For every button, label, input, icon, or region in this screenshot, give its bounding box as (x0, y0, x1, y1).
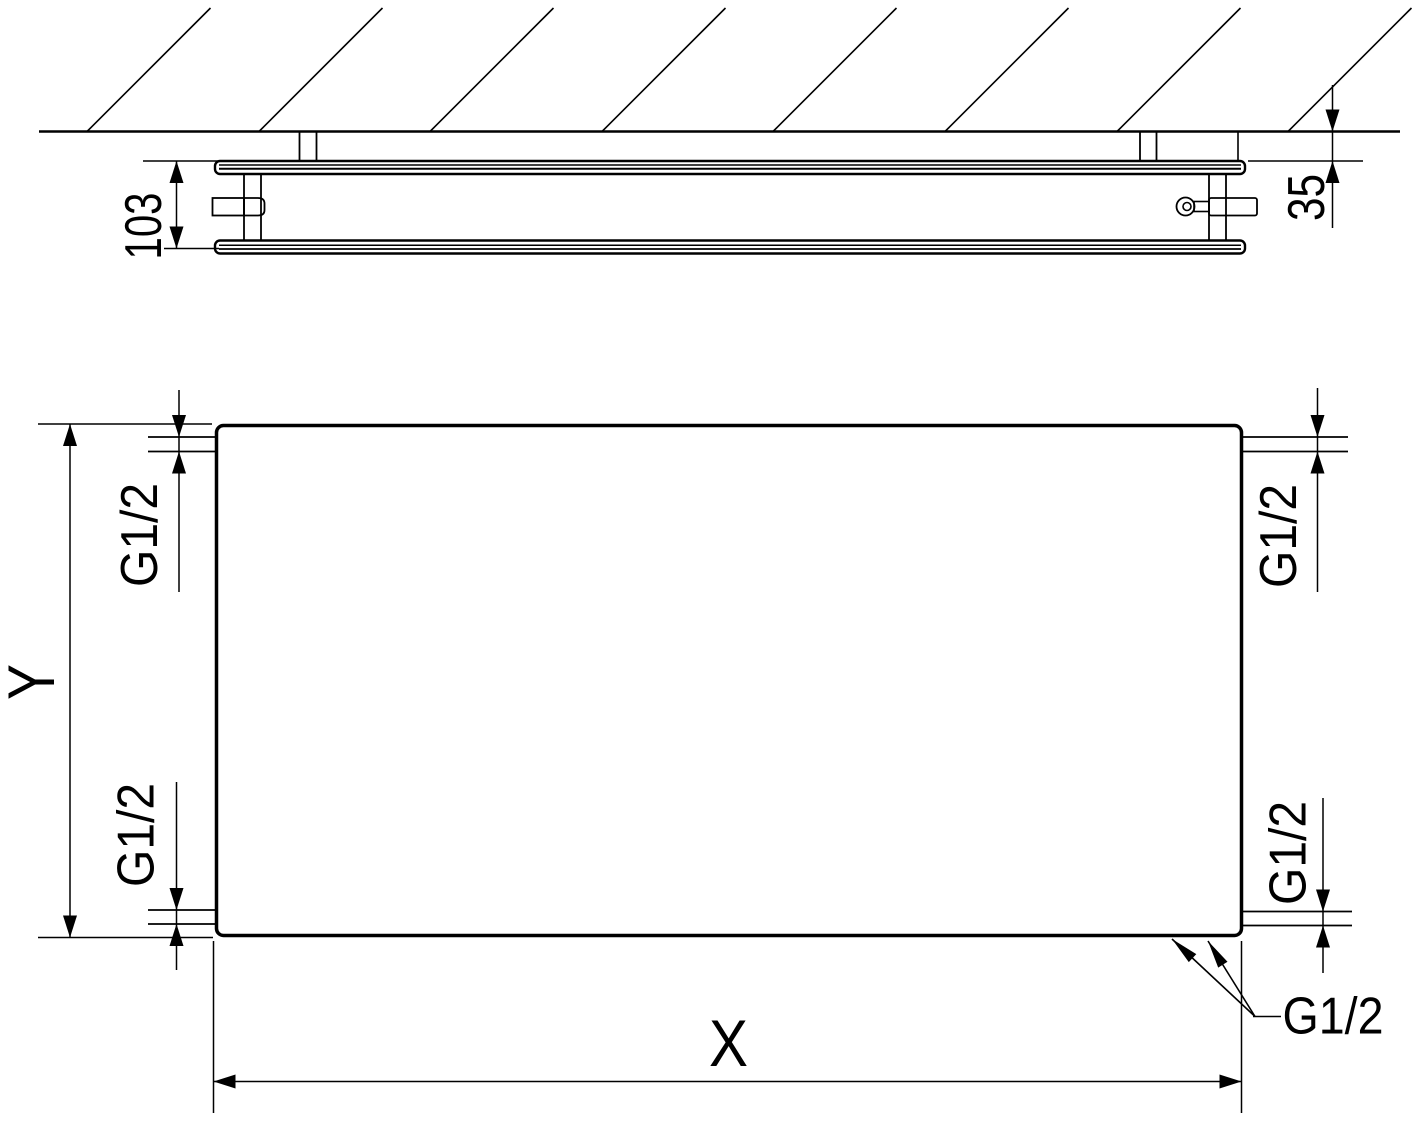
arrow-left-icon (214, 1075, 236, 1089)
radiator-back-panel (215, 161, 1245, 174)
arrow-down-icon (172, 415, 186, 437)
wall-distance-dimension-label: 35 (1278, 174, 1336, 221)
width-dimension-label: X (709, 1006, 748, 1080)
radiator-cross-section (213, 132, 1258, 254)
arrow-up-icon (1316, 926, 1330, 948)
wall-bracket-right (1140, 132, 1157, 162)
height-dimension: Y (0, 424, 213, 938)
panel-connector-left (213, 174, 265, 241)
bottom-connection-callout-label: G1/2 (1283, 988, 1384, 1046)
section-view: 103 35 (39, 8, 1412, 260)
depth-dimension-label: 103 (115, 193, 173, 260)
width-dimension: X (214, 941, 1242, 1113)
front-view: Y X G1/2 G1/2 (0, 388, 1384, 1113)
radiator-technical-drawing: 103 35 Y X (0, 0, 1419, 1123)
port-bottom-right: G1/2 (1242, 798, 1352, 973)
arrow-up-icon (172, 452, 186, 474)
bottom-connection-callout: G1/2 (1172, 939, 1384, 1046)
port-bottom-left-label: G1/2 (108, 783, 166, 887)
arrow-down-icon (1311, 415, 1325, 437)
arrow-up-icon (1311, 452, 1325, 474)
port-bottom-right-label: G1/2 (1260, 801, 1318, 905)
height-dimension-label: Y (0, 664, 68, 700)
arrow-up-icon (170, 924, 184, 946)
arrow-up-icon (63, 424, 77, 446)
depth-dimension: 103 (115, 161, 219, 260)
panel-connector-right (1209, 174, 1226, 241)
port-top-right-label: G1/2 (1250, 484, 1308, 588)
arrow-right-icon (1220, 1075, 1242, 1089)
arrow-down-icon (170, 888, 184, 910)
port-bottom-left: G1/2 (108, 782, 217, 970)
arrow-down-icon (1316, 890, 1330, 912)
port-top-left-label: G1/2 (111, 483, 169, 587)
wall-bracket-left (300, 132, 317, 162)
arrow-down-icon (1326, 110, 1340, 132)
arrow-up-icon (170, 161, 184, 183)
leader-arrow-icon (1208, 941, 1228, 968)
port-top-right: G1/2 (1242, 388, 1348, 592)
vent-valve (1177, 198, 1258, 216)
wall-distance-dimension: 35 (1248, 85, 1363, 228)
port-top-left: G1/2 (111, 390, 216, 592)
wall-hatching (87, 8, 1412, 132)
radiator-front-panel-section (215, 241, 1245, 254)
arrow-down-icon (63, 916, 77, 938)
radiator-front-outline (217, 426, 1242, 936)
